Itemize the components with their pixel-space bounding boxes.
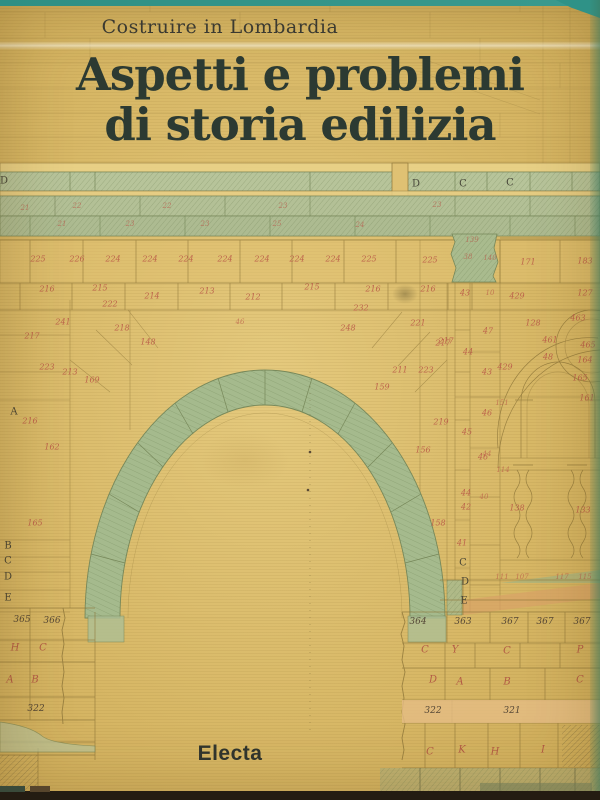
bottom-edge-detail [30, 786, 50, 792]
bottom-edge-detail [480, 783, 592, 791]
bottom-edge-detail [0, 786, 25, 792]
publisher-logo: Electa [0, 742, 460, 766]
book-cover: DDCC212222232321232325242252262242242242… [0, 0, 600, 800]
book-title-line2: di storia edilizia [28, 100, 572, 150]
series-title: Costruire in Lombardia [0, 16, 440, 38]
top-edge-background [0, 0, 600, 6]
book-title-line1: Aspetti e problemi [28, 50, 572, 100]
bottom-edge-shadow [0, 791, 600, 800]
book-title: Aspetti e problemi di storia edilizia [28, 50, 572, 150]
right-edge-background [590, 0, 600, 800]
